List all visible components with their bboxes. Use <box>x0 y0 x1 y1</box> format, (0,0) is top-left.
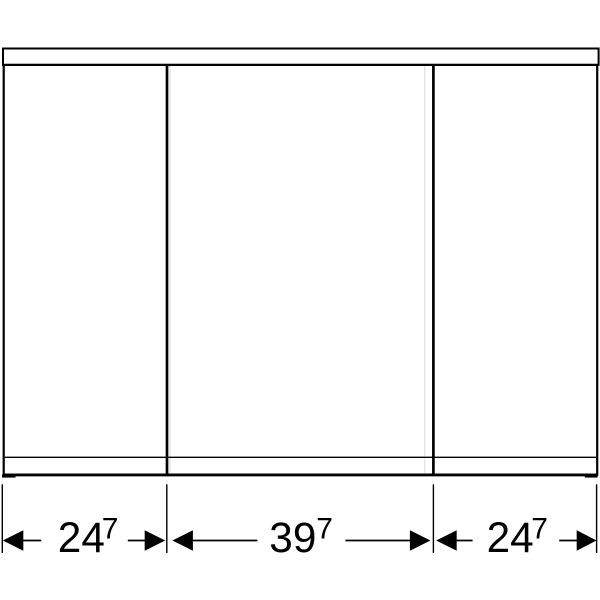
svg-text:7: 7 <box>531 512 548 545</box>
svg-text:7: 7 <box>316 512 333 545</box>
svg-text:7: 7 <box>102 512 119 545</box>
svg-text:24: 24 <box>58 514 105 561</box>
svg-text:24: 24 <box>487 514 534 561</box>
svg-text:39: 39 <box>269 514 316 561</box>
